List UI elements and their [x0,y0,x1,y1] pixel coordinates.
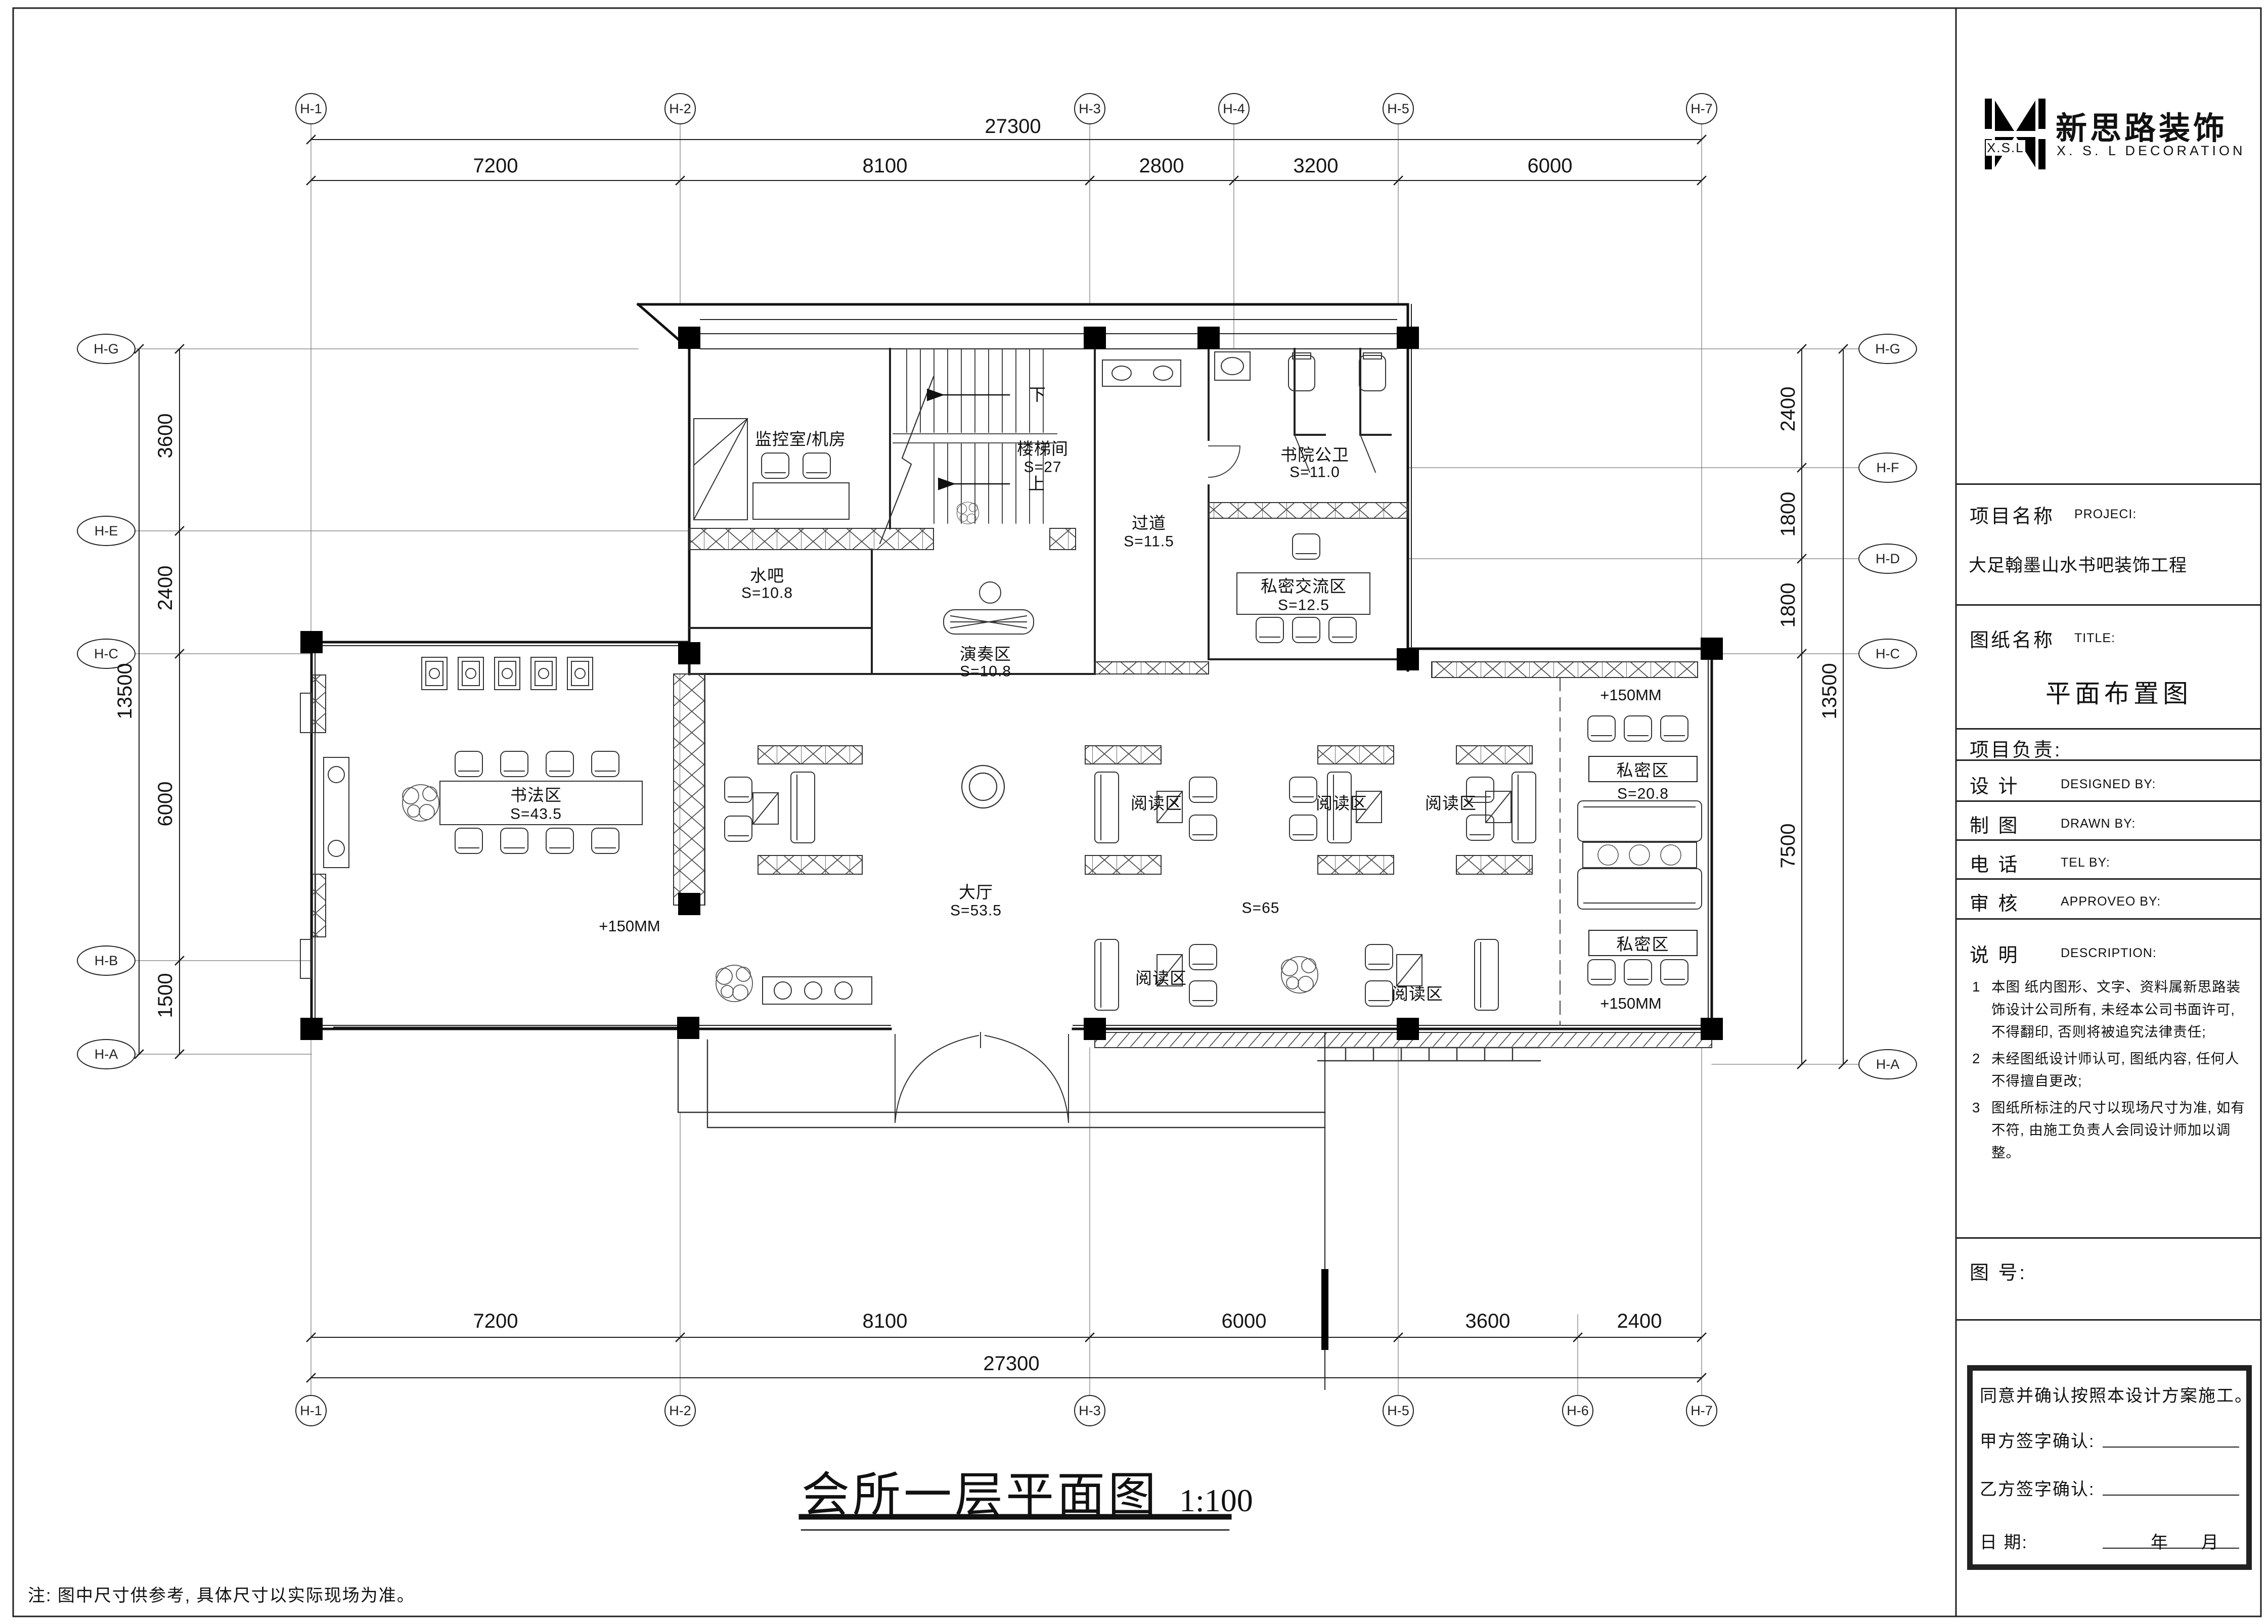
dim-right-2: 1800 [1777,492,1799,537]
room-label-waterbar: 水吧 [750,567,784,585]
note-3-num: 3 [1972,1097,1991,1164]
dim-top-1: 7200 [473,155,518,177]
drawing-no-label: 图 号: [1970,1257,2027,1285]
sheet-label-en: TITLE: [2074,631,2115,646]
drawing-sheet: H-1 H-2 H-3 H-4 H-5 H-7 H-1 H-2 H-3 H-5 … [0,0,2268,1624]
project-label-en: PROJECI: [2074,507,2137,522]
drawing-title-scale: 1:100 [1179,1482,1253,1519]
date-month-label: 月 [2201,1528,2218,1553]
approve-label: 审 核 [1970,888,2020,916]
private-zone-furniture [1578,801,1702,909]
design-label: 设 计 [1970,771,2020,798]
room-area-reading-total: S=65 [1242,900,1280,917]
dim-bottom-5: 2400 [1617,1310,1662,1332]
dim-left-4: 1500 [154,973,176,1018]
room-area-stair: S=27 [1024,459,1062,476]
grid-bubble-left-a: H-A [77,1039,136,1069]
room-label-corridor: 过道 [1132,514,1166,532]
note-3-text: 图纸所标注的尺寸以现场尺寸为准, 如有不符, 由施工负责人会同设计师加以调整。 [1991,1097,2249,1164]
hall-furniture [962,765,1004,808]
note-2-num: 2 [1972,1048,1991,1093]
hall-bench [763,977,872,1004]
elevation-label-3: +150MM [1600,995,1661,1012]
footnote: 注: 图中尺寸供参考, 具体尺寸以实际现场为准。 [28,1582,415,1606]
room-area-hall: S=53.5 [950,903,1002,919]
dim-top-4: 3200 [1294,155,1339,177]
dim-right-total: 13500 [1818,663,1841,719]
dim-right-4: 7500 [1777,824,1799,869]
room-label-hall: 大厅 [959,883,993,901]
grid-bubble-bottom-2: H-2 [664,1395,696,1426]
room-label-reading-4: 阅读区 [1135,969,1187,987]
project-label: 项目名称 [1970,501,2055,528]
dim-bottom-2: 8100 [863,1310,908,1332]
dim-bottom-1: 7200 [473,1310,518,1332]
date-label: 日 期: [1980,1528,2028,1553]
grid-bubble-bottom-3: H-3 [1074,1395,1105,1426]
grid-bubble-left-g: H-G [77,334,136,364]
description-label: 说 明 [1970,939,2020,967]
description-note-2: 2 未经图纸设计师认可, 图纸内容, 任何人不得擅自更改; [1972,1048,2249,1093]
logo-xsl-text: X.S.L [1986,140,2025,156]
note-1-num: 1 [1972,976,1991,1044]
room-area-private-talk: S=12.5 [1278,597,1329,614]
entrance [895,1032,1069,1122]
grid-bubble-right-c: H-C [1858,639,1917,669]
drawn-label: 制 图 [1970,810,2020,838]
grid-bubble-top-5: H-5 [1383,93,1414,124]
grid-bubble-left-e: H-E [77,516,136,546]
design-label-en: DESIGNED BY: [2061,777,2156,792]
room-label-private-1: 私密区 [1588,756,1698,782]
dim-top-3: 2800 [1139,155,1184,177]
grid-bubble-top-1: H-1 [295,93,327,124]
party-a-label: 甲方签字确认: [1980,1427,2095,1452]
dim-left-total: 13500 [114,663,136,719]
dim-bottom-4: 3600 [1465,1310,1510,1332]
signature-box: 同意并确认按照本设计方案施工。 甲方签字确认: 乙方签字确认: 日 期: 年 月 [1967,1365,2252,1570]
room-label-private-talk: 私密交流区 [1261,577,1347,596]
elevation-label-1: +150MM [599,918,660,935]
signature-agree-text: 同意并确认按照本设计方案施工。 [1980,1382,2253,1407]
room-area-waterbar: S=10.8 [741,585,793,602]
description-notes: 1 本图 纸内图形、文字、资料属新思路装饰设计公司所有, 未经本公司书面许可, … [1972,976,2249,1168]
grid-bubble-bottom-1: H-1 [295,1395,327,1426]
logo-en-text: X. S. L DECORATION [2057,143,2246,159]
dim-top-total: 27300 [985,115,1041,138]
private-zone-plants [1598,845,1681,865]
stair-up-label: 上 [1028,475,1045,493]
elevation-label-2: +150MM [1600,687,1661,704]
room-area-private-1: S=20.8 [1617,786,1669,802]
room-label-private-2: 私密区 [1588,930,1698,956]
dim-right-3: 1800 [1777,583,1799,628]
grid-bubble-bottom-5: H-5 [1383,1395,1414,1426]
description-label-en: DESCRIPTION: [2061,946,2157,961]
note-1-text: 本图 纸内图形、文字、资料属新思路装饰设计公司所有, 未经本公司书面许可, 不得… [1991,976,2249,1044]
project-name: 大足翰墨山水书吧装饰工程 [1969,551,2187,577]
room-area-calligraphy: S=43.5 [510,806,562,823]
stair-down-label: 下 [1029,386,1046,404]
dim-left-3: 6000 [154,782,176,827]
description-note-1: 1 本图 纸内图形、文字、资料属新思路装饰设计公司所有, 未经本公司书面许可, … [1972,976,2249,1044]
grid-bubble-left-b: H-B [77,945,136,976]
dim-right-1: 2400 [1777,387,1799,432]
grid-bubble-right-g: H-G [1858,334,1917,364]
grid-bubble-top-7: H-7 [1686,93,1717,124]
sheet-label: 图纸名称 [1970,624,2055,652]
note-2-text: 未经图纸设计师认可, 图纸内容, 任何人不得擅自更改; [1991,1048,2249,1093]
hatch-bands [313,503,1712,1048]
piano [944,582,1034,634]
dim-bottom-total: 27300 [983,1352,1039,1375]
sheet-name: 平面布置图 [2045,673,2192,710]
date-line [2103,1528,2239,1549]
drawn-label-en: DRAWN BY: [2061,817,2136,831]
party-b-label: 乙方签字确认: [1980,1475,2095,1500]
tel-label: 电 话 [1970,849,2020,877]
section-line [1321,1032,1328,1389]
drawing-title: 会所一层平面图 1:100 [802,1456,1253,1525]
grid-bubble-top-3: H-3 [1074,93,1105,124]
grid-bubble-top-2: H-2 [664,93,696,124]
grid-bubble-top-4: H-4 [1218,93,1250,124]
room-label-calligraphy: 书法区 [510,786,562,804]
company-logo: X.S.L 新思路装饰 X. S. L DECORATION [1985,94,2248,179]
leader-label: 项目负责: [1970,734,2062,762]
room-area-toilet: S=11.0 [1289,464,1340,481]
room-label-reading-5: 阅读区 [1392,985,1443,1003]
room-area-corridor: S=11.5 [1124,533,1174,550]
calligraphy-furniture [300,693,642,978]
room-label-reading-3: 阅读区 [1425,794,1477,813]
grid-bubble-bottom-6: H-6 [1562,1395,1593,1426]
logo-cn-text: 新思路装饰 [2056,103,2228,148]
grid-bubble-bottom-7: H-7 [1686,1395,1717,1426]
room-label-reading-1: 阅读区 [1131,794,1182,813]
approve-label-en: APPROVEO BY: [2061,894,2161,909]
description-note-3: 3 图纸所标注的尺寸以现场尺寸为准, 如有不符, 由施工负责人会同设计师加以调整… [1972,1097,2249,1164]
drawing-title-text: 会所一层平面图 [802,1456,1159,1525]
room-label-monitor: 监控室/机房 [755,430,846,448]
grid-bubble-right-f: H-F [1858,453,1917,483]
room-label-perform: 演奏区 [960,645,1011,663]
dim-bottom-3: 6000 [1222,1310,1267,1332]
xsl-logo-icon [1985,99,2045,169]
tel-label-en: TEL BY: [2061,855,2110,870]
room-label-toilet: 书院公卫 [1280,446,1349,464]
room-label-reading-2: 阅读区 [1316,794,1367,813]
porch-steps [678,1040,1540,1127]
dim-top-2: 8100 [863,155,908,177]
grid-bubble-right-d: H-D [1858,544,1917,574]
party-a-sign-line [2103,1427,2239,1448]
grid-bubble-right-a: H-A [1858,1049,1917,1079]
room-label-stair: 楼梯间 [1017,440,1069,458]
date-year-label: 年 [2151,1528,2168,1553]
dim-top-5: 6000 [1528,155,1573,177]
room-area-perform: S=10.8 [960,663,1011,680]
dim-left-1: 3600 [154,414,176,459]
party-b-sign-line [2103,1475,2239,1496]
dim-left-2: 2400 [154,566,176,611]
